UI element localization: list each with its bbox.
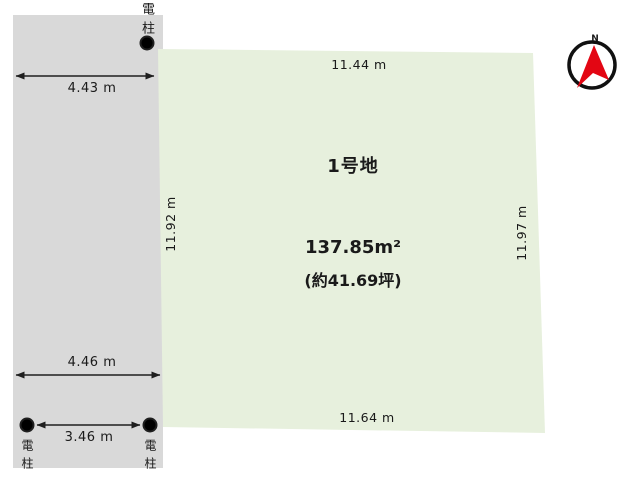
lot-plan-diagram: 4.43 m 4.46 m 3.46 m 電柱 電柱 電柱 11.44 m 11… bbox=[0, 0, 624, 480]
compass-north-icon bbox=[569, 42, 615, 88]
plot-name: 1号地 bbox=[327, 158, 379, 176]
plot-side-bottom-label: 11.64 m bbox=[339, 412, 394, 425]
utility-pole-bottom-left-icon bbox=[21, 419, 34, 432]
plot-side-top-label: 11.44 m bbox=[331, 59, 386, 72]
compass-north-label: N bbox=[591, 35, 599, 44]
utility-pole-bottom-right-icon bbox=[144, 419, 157, 432]
road-bottom-width-label: 4.46 m bbox=[68, 356, 117, 369]
utility-pole-bottom-right-label: 電柱 bbox=[144, 439, 156, 475]
plot-side-right-label: 11.97 m bbox=[516, 205, 529, 260]
utility-pole-top-label: 電柱 bbox=[140, 2, 153, 40]
pole-span-label: 3.46 m bbox=[65, 431, 114, 444]
road-top-width-label: 4.43 m bbox=[68, 82, 117, 95]
plot-area-tsubo: (約41.69坪) bbox=[304, 273, 401, 289]
plot-area-m2: 137.85m² bbox=[305, 239, 401, 257]
plot-side-left-label: 11.92 m bbox=[165, 196, 178, 251]
utility-pole-bottom-left-label: 電柱 bbox=[21, 439, 33, 475]
